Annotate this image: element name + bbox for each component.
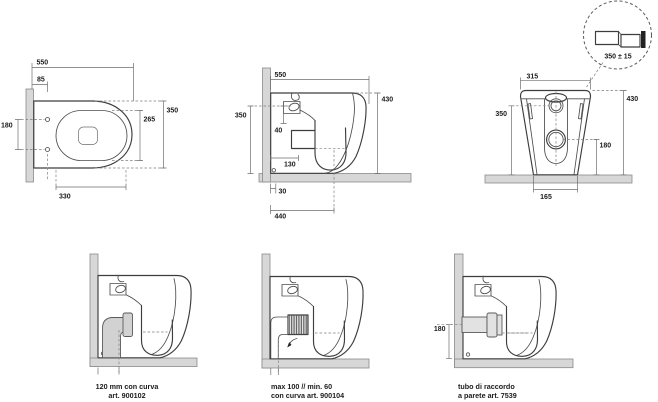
caption-offset-outlet-line2: con curva art. 900104 xyxy=(271,391,344,400)
drain-opening xyxy=(79,127,98,145)
fixing-hole xyxy=(46,148,50,152)
detail-bubble: 350 ± 15 xyxy=(584,1,652,89)
dim-line xyxy=(271,184,276,194)
toilet-plan-outline xyxy=(34,101,132,168)
dim-line xyxy=(137,111,143,161)
connector-pipe-right xyxy=(621,35,640,48)
connector-pipe-left xyxy=(596,32,619,45)
dim-550: 550 xyxy=(37,60,49,67)
dim-line xyxy=(621,91,627,175)
dim-550: 550 xyxy=(275,72,287,79)
technical-drawing: 550 85 180 350 265 330 550 xyxy=(0,0,658,402)
water-inlet-spigot xyxy=(288,102,300,112)
captions: 120 mm con curva art. 900102 max 100 // … xyxy=(96,382,517,400)
dim-130: 130 xyxy=(284,162,296,169)
side-view: 550 430 350 40 130 30 440 xyxy=(235,68,411,221)
dim-440: 440 xyxy=(275,214,287,221)
wall-outlet-pipe xyxy=(462,317,487,333)
dim-330: 330 xyxy=(59,194,71,201)
dim-430: 430 xyxy=(627,96,639,103)
dim-180: 180 xyxy=(434,326,446,333)
bowl-interior-line xyxy=(300,110,315,121)
plan-view: 550 85 180 350 265 330 xyxy=(1,60,178,201)
offset-outlet-view xyxy=(262,254,369,375)
floor-section xyxy=(259,174,411,183)
dim-line xyxy=(375,93,381,174)
inlet-hook-line xyxy=(291,93,299,100)
drain-step xyxy=(292,131,316,149)
dim-line xyxy=(15,120,21,150)
floor-section xyxy=(455,359,574,368)
dim-line xyxy=(281,106,287,124)
base-fixing-mark xyxy=(272,169,275,172)
dim-line xyxy=(446,325,452,359)
caption-wall-outlet-line1: tubo di raccordo xyxy=(458,382,515,391)
outlet-flange-large xyxy=(487,313,497,337)
fixing-hole xyxy=(46,118,50,122)
wall-section xyxy=(26,89,34,182)
dim-line xyxy=(56,184,126,190)
dim-line xyxy=(248,106,254,174)
outlet-flange-small xyxy=(497,315,502,335)
floor-outlet-view xyxy=(90,254,197,375)
dim-40: 40 xyxy=(275,128,283,135)
wall-outlet-view: 180 xyxy=(434,254,573,368)
detail-leader-dashed xyxy=(586,63,604,89)
rear-view: 315 430 350 180 165 xyxy=(485,73,638,201)
caption-floor-outlet-line1: 120 mm con curva xyxy=(96,382,160,391)
caption-wall-outlet-line2: a parete art. 7539 xyxy=(458,391,517,400)
dim-85: 85 xyxy=(37,77,45,84)
wall-section xyxy=(262,254,270,368)
seat-inner-oval xyxy=(56,111,127,161)
wall-section xyxy=(263,68,271,182)
dim-315: 315 xyxy=(527,73,539,80)
dim-165: 165 xyxy=(540,194,552,201)
outlet-flange xyxy=(123,313,133,337)
floor-section xyxy=(90,358,197,367)
wall-section xyxy=(90,254,98,367)
concealed-bend-pipe xyxy=(271,317,288,359)
dim-ticks xyxy=(271,368,279,375)
extension-dashed xyxy=(56,170,126,184)
caption-floor-outlet-line2: art. 900102 xyxy=(108,391,145,400)
wall-section xyxy=(455,254,464,368)
toilet-inner-front-line xyxy=(326,93,355,173)
floor-section xyxy=(485,175,632,183)
floor-outlet-elbow-pipe xyxy=(103,318,124,358)
flow-arrow-head xyxy=(287,342,291,348)
technical-drawing-page: 550 85 180 350 265 330 550 xyxy=(0,0,658,402)
dim-350: 350 xyxy=(167,108,179,115)
dim-350: 350 xyxy=(495,111,507,118)
siphon-trap xyxy=(315,121,346,171)
connector-gasket xyxy=(641,31,646,48)
dim-line xyxy=(509,106,515,175)
dim-30: 30 xyxy=(279,189,287,196)
flow-arrow-tail xyxy=(290,339,297,344)
dim-ticks xyxy=(98,368,119,375)
dim-350: 350 xyxy=(235,113,247,120)
caption-offset-outlet-line1: max 100 // min. 60 xyxy=(271,382,332,391)
dim-180: 180 xyxy=(1,123,13,130)
dim-265: 265 xyxy=(144,117,156,124)
dim-180: 180 xyxy=(600,143,612,150)
dim-line xyxy=(271,155,299,161)
dim-430: 430 xyxy=(382,97,394,104)
detail-tolerance-label: 350 ± 15 xyxy=(604,54,631,61)
